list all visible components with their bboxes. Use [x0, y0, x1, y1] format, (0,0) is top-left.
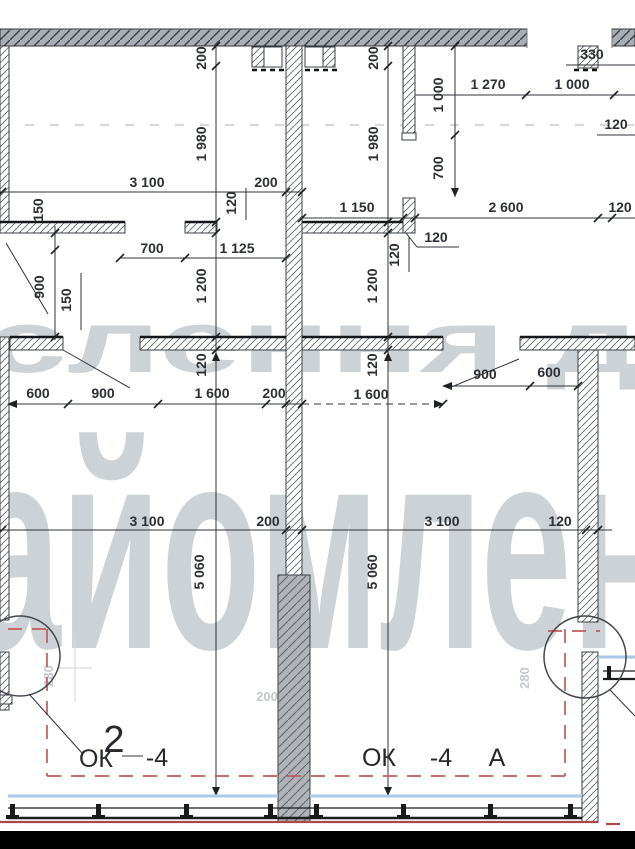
- partition-row1-stub: [185, 222, 217, 233]
- wall-corner-left-bottom: [0, 695, 12, 704]
- dim-600-br: 600: [537, 364, 561, 380]
- dim-150-a: 150: [30, 198, 46, 222]
- central-wall: [286, 46, 302, 575]
- dim-120-bottom-right: 120: [548, 513, 572, 529]
- dim-1980-centre: 1 980: [365, 126, 381, 161]
- dim-1150: 1 150: [339, 199, 374, 215]
- dim-1200-left: 1 200: [193, 268, 209, 303]
- pilaster-left-hatch: [252, 47, 264, 67]
- dim-200-bottom-left: 200: [256, 513, 280, 529]
- watermark: слення д айомлен: [0, 292, 635, 710]
- partition-row2-right: [302, 337, 443, 350]
- dim-3100-bottom-right: 3 100: [424, 513, 459, 529]
- partition-vertical-upper: [403, 46, 415, 140]
- dim-900-vert: 900: [31, 275, 47, 299]
- dim-120-left-wall: 120: [193, 353, 209, 377]
- dim-900-bl: 900: [91, 385, 115, 401]
- dim-5060-left: 5 060: [191, 554, 207, 589]
- dim-1600-bl: 1 600: [194, 385, 229, 401]
- exterior-wall-top: [0, 29, 527, 46]
- dim-1125: 1 125: [219, 240, 254, 256]
- window-left-number: 2: [103, 719, 124, 761]
- dim-150-b: 150: [58, 288, 74, 312]
- dim-330: 330: [580, 46, 604, 62]
- pilaster-right-hatch: [323, 47, 335, 67]
- dim-5060-right: 5 060: [364, 554, 380, 589]
- dim-600-bl: 600: [26, 385, 50, 401]
- partition-row2-far-right: [520, 337, 635, 350]
- dim-120-stub-h: 120: [424, 229, 448, 245]
- window-right-letter: А: [489, 744, 506, 772]
- faint-dim-200: 200: [256, 689, 278, 704]
- wall-right-vertical: [578, 350, 598, 622]
- dim-200-bl: 200: [262, 385, 286, 401]
- floor-plan-svg: слення д айомлен 280 280 200: [0, 0, 635, 849]
- dim-1980-left: 1 980: [193, 126, 209, 161]
- dim-2600: 2 600: [488, 199, 523, 215]
- dim-200-centre: 200: [365, 46, 381, 70]
- window-right-code: -4: [430, 744, 452, 772]
- central-pier: [278, 575, 310, 822]
- window-right-ok: ОК: [362, 744, 396, 772]
- dim-200-top-left: 200: [254, 174, 278, 190]
- exterior-wall-left-upper: [0, 46, 9, 233]
- faint-dim-280-right: 280: [517, 667, 532, 689]
- dim-120-wall: 120: [223, 191, 239, 215]
- photo-letterbox-bar: [0, 831, 635, 849]
- dim-1200-centre: 1 200: [364, 268, 380, 303]
- watermark-line-2: айомлен: [0, 386, 635, 710]
- dim-1000-vert: 1 000: [430, 77, 446, 112]
- dim-700-door: 700: [140, 240, 164, 256]
- dim-1270: 1 270: [470, 76, 505, 92]
- dim-1600-br: 1 600: [353, 386, 388, 402]
- dim-120-top-right: 120: [604, 116, 628, 132]
- dim-3100-top-left: 3 100: [129, 174, 164, 190]
- partition-row1-left: [0, 222, 125, 233]
- wall-right-vertical-lower: [582, 652, 598, 822]
- window-left-code: -4: [146, 744, 168, 772]
- dim-900-br: 900: [473, 366, 497, 382]
- dim-3100-bottom-left: 3 100: [129, 513, 164, 529]
- dim-120-right: 120: [608, 199, 632, 215]
- dim-120-stub-v: 120: [386, 243, 402, 267]
- floor-plan-screenshot: слення д айомлен 280 280 200: [0, 0, 635, 849]
- dim-120-centre-wall: 120: [364, 353, 380, 377]
- exterior-wall-top-right: [612, 29, 635, 46]
- door-jamb: [402, 133, 416, 140]
- dim-700-vert: 700: [430, 156, 446, 180]
- dim-1000-horiz: 1 000: [554, 76, 589, 92]
- exterior-wall-left-mid: [0, 337, 9, 620]
- dim-200-left: 200: [193, 46, 209, 70]
